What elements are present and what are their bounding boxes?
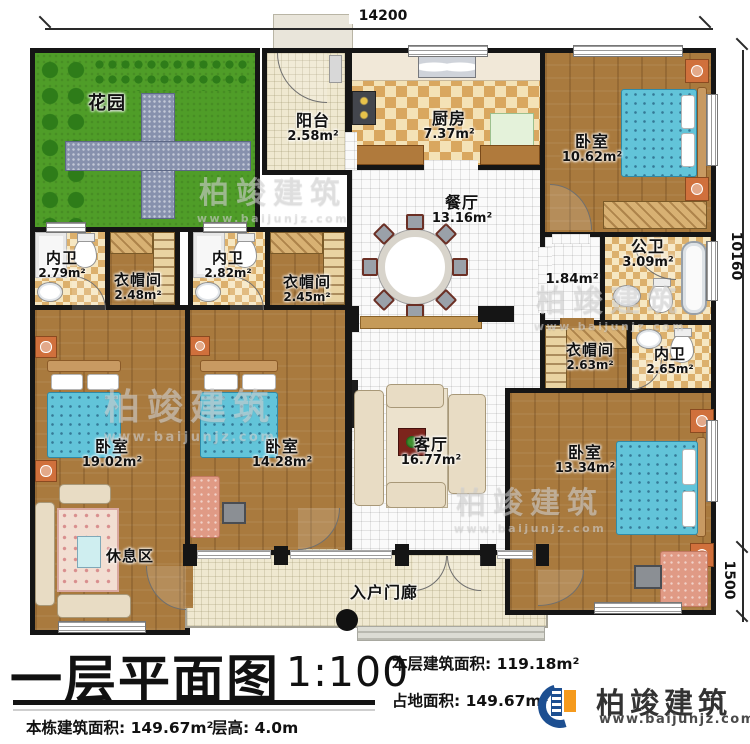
armchair	[59, 484, 111, 504]
stove	[352, 91, 376, 125]
window	[706, 94, 718, 166]
sofa	[386, 384, 444, 408]
porch-column	[274, 546, 288, 565]
room-label-bedroom-br: 卧室 13.34m²	[540, 444, 630, 476]
floor-height-value: 4.0m	[255, 719, 299, 737]
computer	[634, 565, 662, 589]
bathroom-sink	[613, 285, 641, 307]
opening	[560, 318, 594, 328]
room-label-closet-r: 衣帽间 2.63m²	[552, 342, 628, 372]
dimension-label-right-lower: 1500	[721, 557, 737, 603]
room-label-bath1: 内卫 2.79m²	[30, 250, 94, 280]
dimension-label-top: 14200	[349, 8, 417, 24]
title-underline	[13, 700, 375, 705]
pillow	[242, 374, 276, 390]
room-label-public-bath: 公卫 3.09m²	[608, 238, 688, 270]
dining-chair	[452, 258, 468, 276]
pillow	[682, 449, 696, 485]
total-area-label: 本栋建筑面积:	[26, 719, 125, 737]
room-label-bath2: 内卫 2.82m²	[196, 250, 260, 280]
room-label-balcony: 阳台 2.58m²	[277, 112, 349, 144]
toilet	[649, 283, 673, 313]
bathroom-sink	[195, 282, 221, 302]
dimension-tick	[699, 16, 712, 29]
dimension-line-right	[742, 50, 744, 622]
sofa	[35, 502, 55, 606]
porch-window	[497, 550, 533, 559]
drawing-scale: 1:100	[286, 648, 409, 696]
sofa	[57, 594, 131, 618]
room-label-bath-r: 内卫 2.65m²	[636, 346, 704, 376]
nightstand	[685, 177, 709, 201]
opening	[424, 160, 478, 172]
room-label-porch: 入户门廊	[326, 584, 442, 602]
window	[46, 222, 86, 233]
computer	[222, 502, 246, 524]
kitchen-cabinet	[352, 145, 424, 165]
garden-path-horizontal	[65, 141, 251, 171]
brand-logo-icon	[534, 678, 590, 734]
dimension-label-right-upper: 10160	[728, 228, 744, 284]
room-label-dining: 餐厅 13.16m²	[417, 194, 507, 226]
dimension-line-top	[45, 28, 713, 30]
pillow	[681, 95, 695, 129]
sofa	[354, 390, 384, 506]
washing-machine	[329, 55, 342, 83]
pillow	[204, 374, 238, 390]
garden-plants	[93, 57, 251, 91]
dining-chair	[362, 258, 378, 276]
room-label-living: 客厅 16.77m²	[386, 436, 476, 468]
kitchen-sink	[418, 56, 476, 78]
wardrobe	[603, 201, 707, 229]
dimension-tick	[39, 16, 52, 29]
pillow	[51, 374, 83, 390]
total-area-value: 149.67m²	[131, 719, 214, 737]
floorplan-page: 花园 阳台 2.58m² 厨房 7.37m² 餐厅 13.16m² 卧室 10.…	[0, 0, 750, 744]
room-bedroom-bottom-right	[505, 388, 716, 615]
garden-bushes	[37, 57, 87, 223]
sideboard	[360, 316, 482, 329]
floor-area-value: 119.18m²	[497, 655, 580, 673]
floor-height-row: 层高: 4.0m	[212, 716, 298, 738]
logo-tower	[551, 688, 562, 716]
nightstand	[190, 336, 210, 356]
nightstand	[685, 59, 709, 83]
floor-area-row: 本层建筑面积: 119.18m²	[392, 652, 579, 674]
room-label-closet1: 衣帽间 2.48m²	[100, 272, 176, 302]
logo-block	[564, 690, 576, 712]
porch-column	[480, 544, 496, 566]
room-label-garden: 花园	[62, 94, 152, 114]
sofa	[386, 482, 446, 508]
porch-window	[197, 550, 271, 559]
window	[706, 420, 718, 502]
window	[58, 621, 146, 633]
desk-rug	[190, 476, 220, 538]
window	[203, 222, 247, 233]
title-underline-thin	[13, 709, 375, 711]
window	[706, 241, 718, 301]
entry-column	[336, 609, 358, 631]
pillow	[681, 133, 695, 167]
entry-steps	[357, 626, 545, 641]
porch-column	[183, 544, 197, 566]
closet-shelf	[110, 232, 153, 254]
room-label-rest-area: 休息区	[92, 548, 168, 565]
room-label-bedroom-tr: 卧室 10.62m²	[550, 133, 634, 165]
window	[594, 602, 682, 614]
land-area-row: 占地面积: 149.67m²	[392, 689, 548, 711]
wall-stub	[478, 306, 514, 322]
room-label-closet2: 衣帽间 2.45m²	[268, 274, 346, 304]
land-area-label: 占地面积:	[392, 692, 460, 710]
kitchen-cabinet	[480, 145, 540, 165]
room-label-hall: 1.84m²	[543, 272, 601, 287]
porch-column	[536, 544, 549, 566]
nightstand	[35, 460, 57, 482]
bathroom-sink	[37, 282, 63, 302]
porch-window	[290, 550, 392, 559]
balcony-canopy	[273, 14, 353, 50]
total-area-row: 本栋建筑面积: 149.67m²	[26, 716, 213, 738]
room-label-bedroom1: 卧室 19.02m²	[68, 438, 156, 470]
desk-rug	[660, 551, 708, 607]
closet-shelf	[270, 232, 323, 254]
pillow	[87, 374, 119, 390]
room-label-bedroom2: 卧室 14.28m²	[238, 438, 326, 470]
window	[573, 45, 683, 57]
pillow	[682, 491, 696, 527]
opening	[552, 234, 590, 244]
bed-headboard	[200, 360, 278, 372]
dimension-tick	[736, 38, 749, 51]
room-garden	[30, 48, 260, 232]
nightstand	[35, 336, 57, 358]
window	[408, 45, 488, 57]
porch-column	[395, 544, 409, 566]
room-label-kitchen: 厨房 7.37m²	[407, 110, 491, 142]
brand-site: www.baijunjz.com	[599, 712, 750, 727]
floor-height-label: 层高:	[212, 719, 249, 737]
wall-stub	[345, 306, 359, 332]
floor-area-label: 本层建筑面积:	[392, 655, 491, 673]
bed-headboard	[47, 360, 121, 372]
